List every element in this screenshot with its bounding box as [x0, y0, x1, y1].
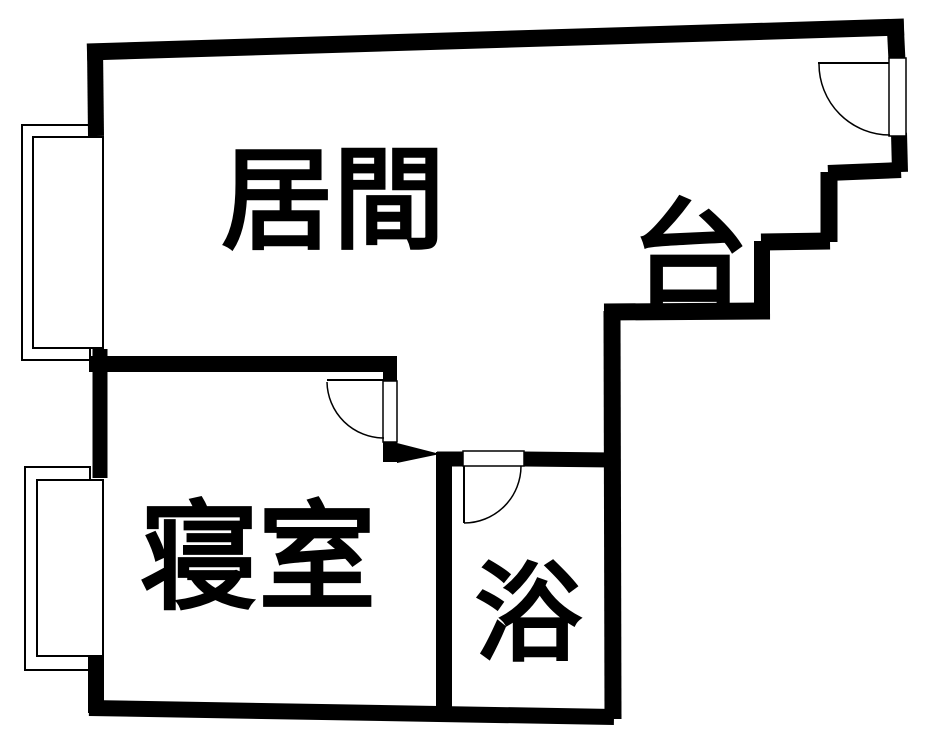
- bedroom-label: 寝室: [140, 493, 376, 625]
- wall-step-1-horizontal: [828, 170, 901, 173]
- wall-wedge-bedroom-bathroom: [397, 443, 440, 463]
- entrance-door-swing-arc: [819, 64, 890, 135]
- bathroom-door-opening: [463, 451, 524, 466]
- bedroom-door-swing-arc: [327, 382, 384, 438]
- wall-step-2-horizontal: [761, 241, 830, 242]
- bedroom-door-opening: [383, 381, 397, 442]
- wall-bottom: [89, 708, 614, 717]
- wall-right-upper: [895, 20, 897, 61]
- wall-bathroom-top-right: [524, 459, 613, 460]
- bathroom-door-swing-arc: [464, 466, 521, 523]
- wall-left-upper: [95, 46, 96, 136]
- living-room-label: 居間: [221, 138, 445, 263]
- floor-plan: 居間 台 寝室 浴: [0, 0, 944, 744]
- kitchen-label: 台: [631, 191, 749, 323]
- entrance-door-opening: [889, 58, 906, 136]
- wall-kitchen-bathroom-right: [612, 311, 613, 719]
- wall-top: [87, 27, 904, 52]
- floor-plan-drawing: 居間 台 寝室 浴: [0, 0, 944, 744]
- bathroom-label: 浴: [474, 553, 583, 674]
- window-upper-left-inner-frame: [33, 137, 103, 348]
- window-lower-left-inner-frame: [37, 480, 103, 656]
